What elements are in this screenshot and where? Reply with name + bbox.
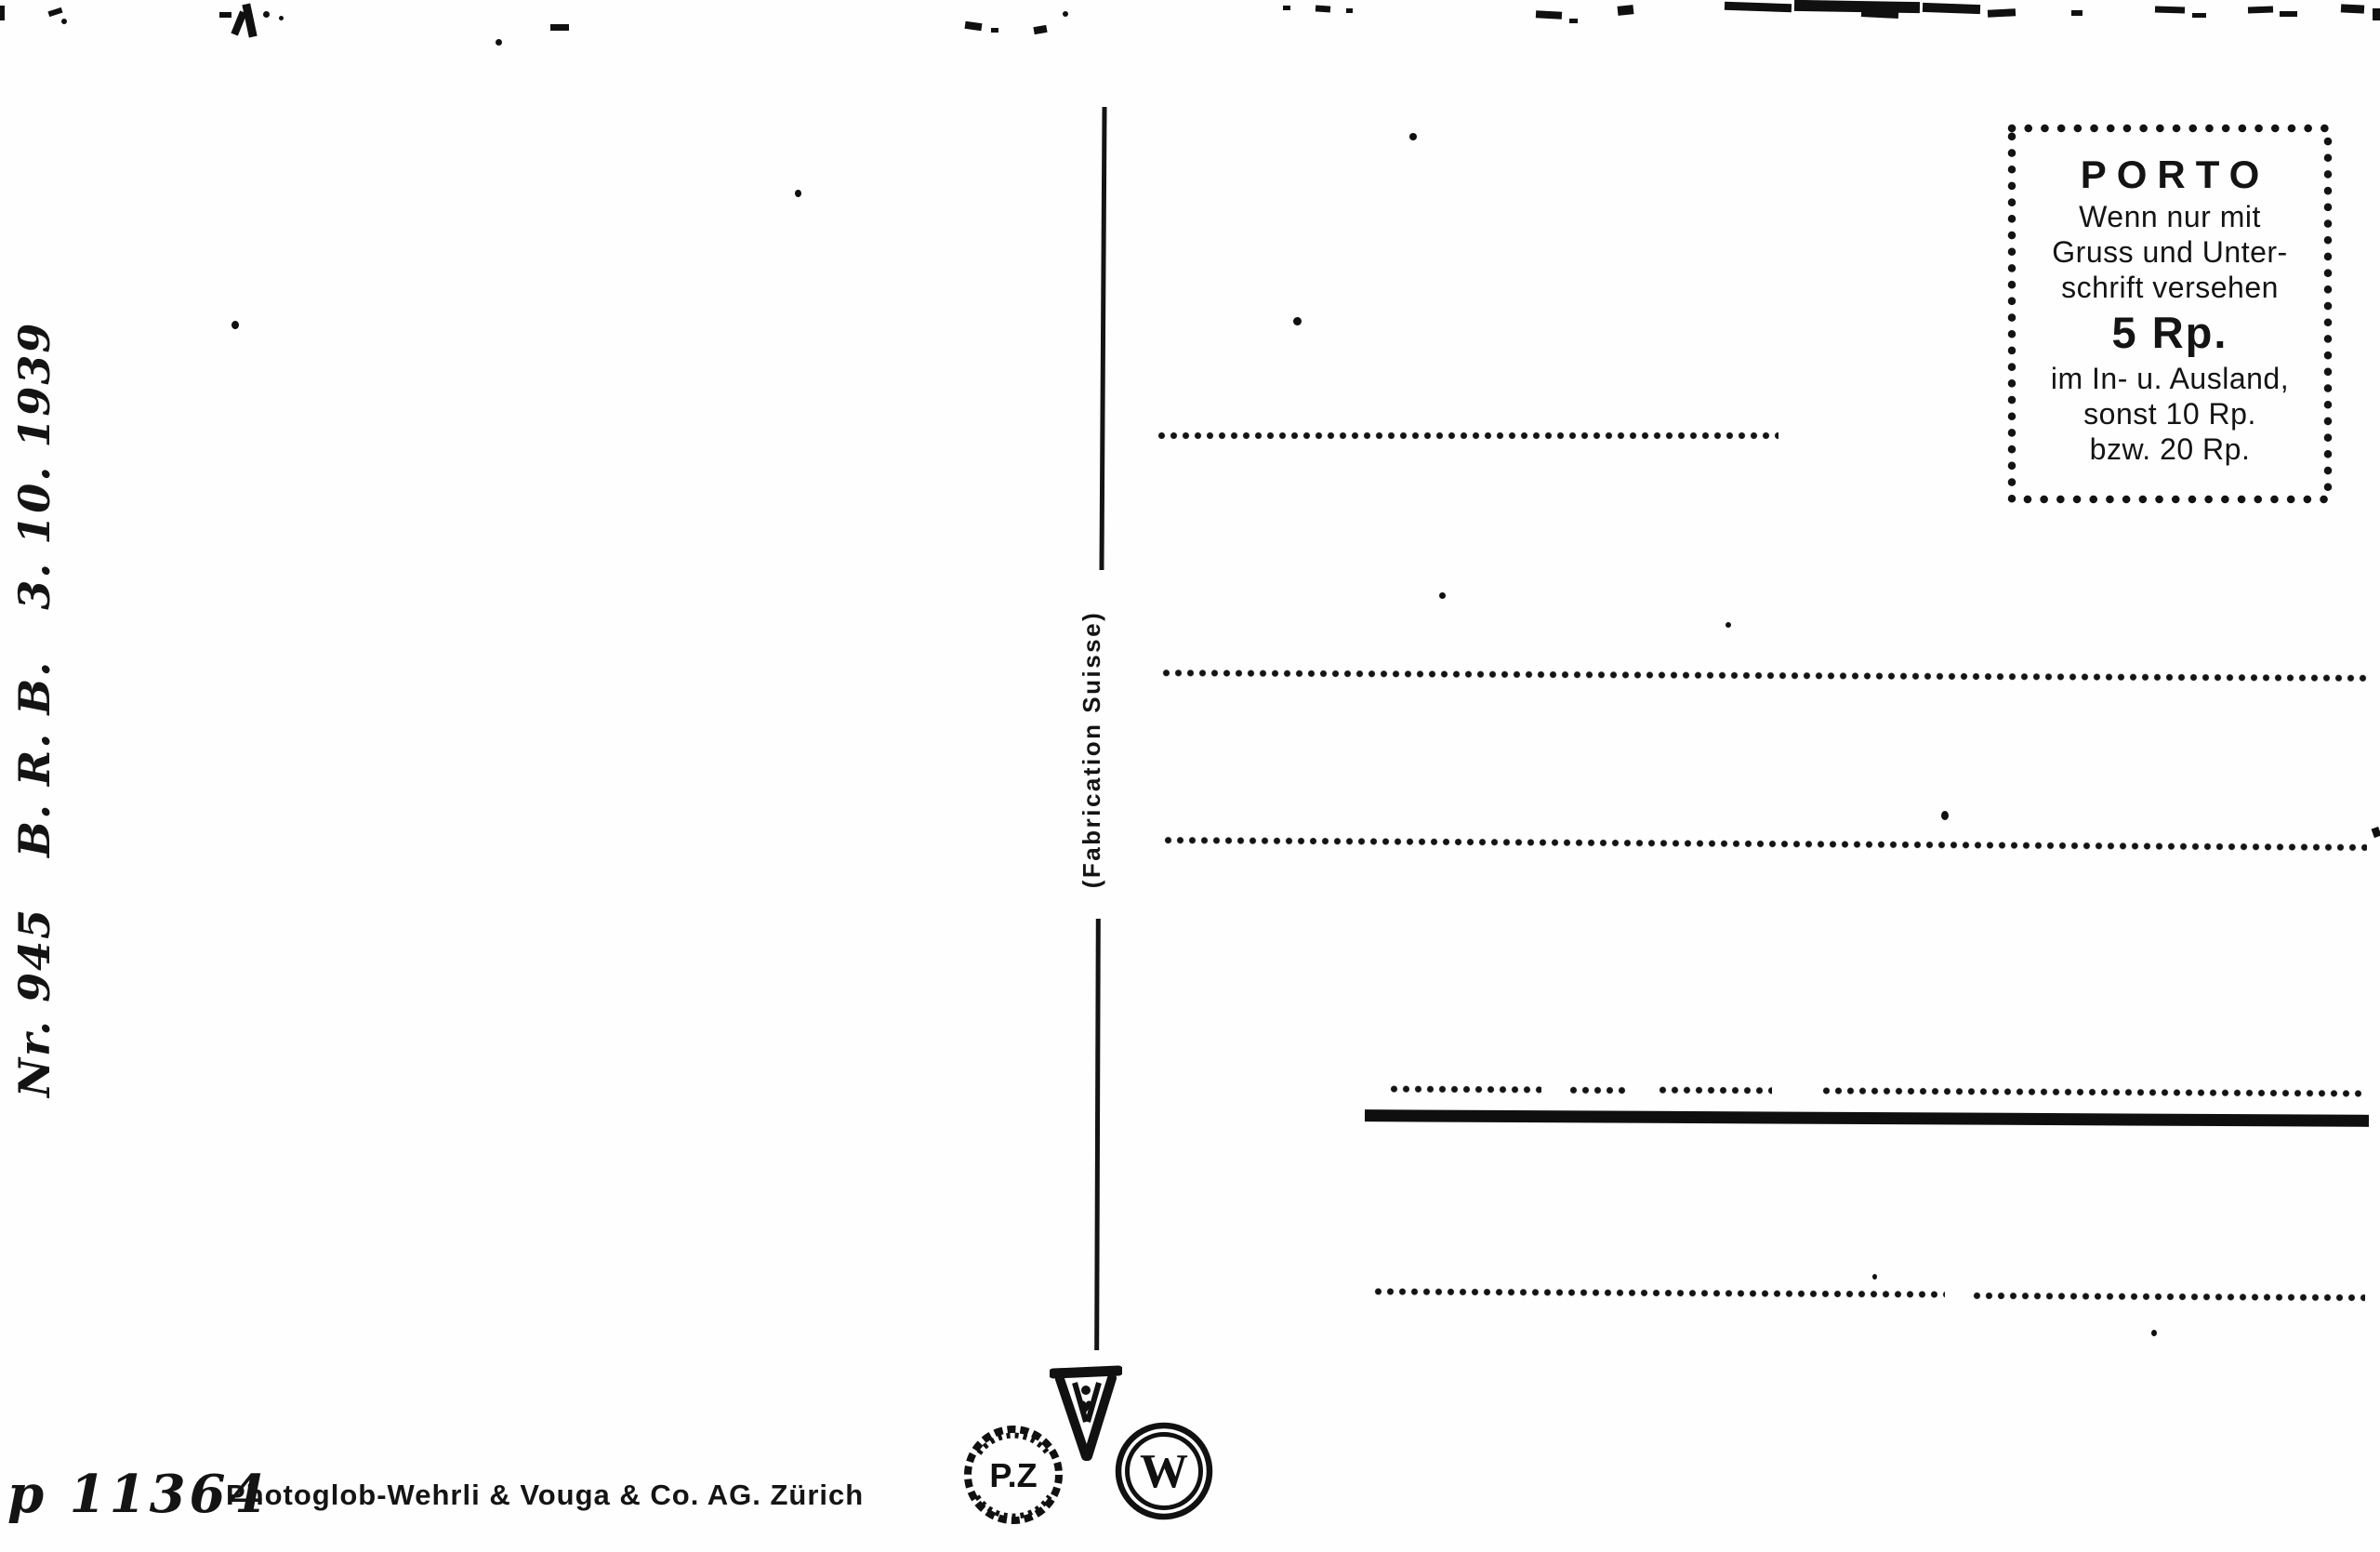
publisher-name: Photoglob-Wehrli & Vouga & Co. AG. Züric…: [226, 1479, 864, 1512]
scan-artifact: [1923, 3, 1980, 14]
scan-artifact: [1283, 6, 1290, 10]
scan-artifact: [1941, 811, 1949, 820]
scan-artifact: [1293, 317, 1302, 325]
scan-artifact: [231, 321, 239, 329]
porto-footer-line: im In- u. Ausland,: [2006, 361, 2334, 396]
scan-artifact: [1569, 19, 1578, 23]
scan-artifact: [1725, 622, 1731, 628]
scan-artifact: [47, 7, 62, 17]
porto-body-line: Wenn nur mit: [2006, 199, 2334, 234]
scan-artifact: [61, 19, 67, 24]
scan-artifact: [2341, 4, 2364, 13]
scan-artifact: [550, 24, 569, 31]
porto-rate-box: PORTO Wenn nur mit Gruss und Unter- schr…: [2006, 123, 2334, 505]
scan-artifact: [1725, 2, 1792, 13]
address-heavy-rule: [1365, 1109, 2369, 1127]
address-dotted-line-3-seg: [1569, 1086, 1629, 1094]
porto-rate: 5 Rp.: [2006, 305, 2334, 361]
v-triangle-logo: [1050, 1364, 1122, 1465]
scan-artifact: [2071, 10, 2082, 16]
scan-artifact: [1861, 10, 1898, 19]
pz-logo-text: P.Z: [989, 1456, 1037, 1494]
scan-artifact: [279, 16, 284, 20]
scan-artifact: [1618, 5, 1634, 16]
scan-artifact: [1033, 25, 1047, 34]
scan-artifact: [219, 12, 231, 18]
scan-artifact: [1988, 8, 2016, 18]
scan-artifact: [991, 28, 998, 33]
scan-artifact: [965, 21, 983, 31]
address-dotted-line-4-seg: [1374, 1287, 1945, 1298]
w-logo-text: W: [1140, 1445, 1188, 1498]
scan-artifact: [2155, 6, 2185, 13]
porto-footer-line: bzw. 20 Rp.: [2006, 431, 2334, 467]
address-dotted-line-3-seg: [1659, 1086, 1772, 1095]
scan-artifact: [1794, 0, 1920, 13]
scan-artifact: [496, 39, 502, 46]
wehrli-circle-logo: W: [1114, 1421, 1214, 1521]
scan-artifact: [1346, 8, 1353, 13]
divider-line-top: [1099, 107, 1106, 570]
scan-artifact: [2151, 1330, 2157, 1336]
address-dotted-line-1: [1162, 669, 2367, 683]
porto-title: PORTO: [2006, 151, 2334, 199]
message-dotted-line: [1157, 431, 1778, 440]
fabrication-suisse-label: (Fabrication Suisse): [1078, 584, 1106, 915]
scan-artifact: [1409, 133, 1417, 140]
porto-body-line: schrift versehen: [2006, 270, 2334, 305]
scan-artifact: [2280, 11, 2297, 17]
address-dotted-line-3-seg: [1822, 1086, 2361, 1097]
scan-artifact: [795, 190, 801, 197]
scan-artifact: [242, 3, 257, 37]
address-dotted-line-3-seg: [1390, 1085, 1541, 1094]
scan-artifact: [1872, 1274, 1877, 1280]
reference-number-vertical: Nr. 945 B. R. B. 3. 10. 1939: [9, 461, 59, 1097]
scan-artifact: [1063, 11, 1068, 17]
porto-content: PORTO Wenn nur mit Gruss und Unter- schr…: [2006, 123, 2334, 467]
scan-artifact: [2372, 827, 2380, 838]
postcard-back: Nr. 945 B. R. B. 3. 10. 1939 (Fabricatio…: [0, 0, 2380, 1552]
address-dotted-line-2: [1164, 836, 2367, 852]
divider-line-bottom: [1094, 919, 1101, 1350]
scan-artifact: [0, 6, 5, 20]
scan-artifact: [263, 11, 270, 18]
porto-body-line: Gruss und Unter-: [2006, 234, 2334, 270]
scan-artifact: [2373, 8, 2380, 20]
scan-artifact: [1536, 10, 1562, 19]
address-dotted-line-4-seg: [1973, 1292, 2365, 1302]
porto-footer-line: sonst 10 Rp.: [2006, 396, 2334, 431]
scan-artifact: [1316, 5, 1330, 12]
scan-artifact: [2248, 7, 2273, 14]
scan-artifact: [1439, 592, 1446, 599]
scan-artifact: [2192, 13, 2206, 18]
